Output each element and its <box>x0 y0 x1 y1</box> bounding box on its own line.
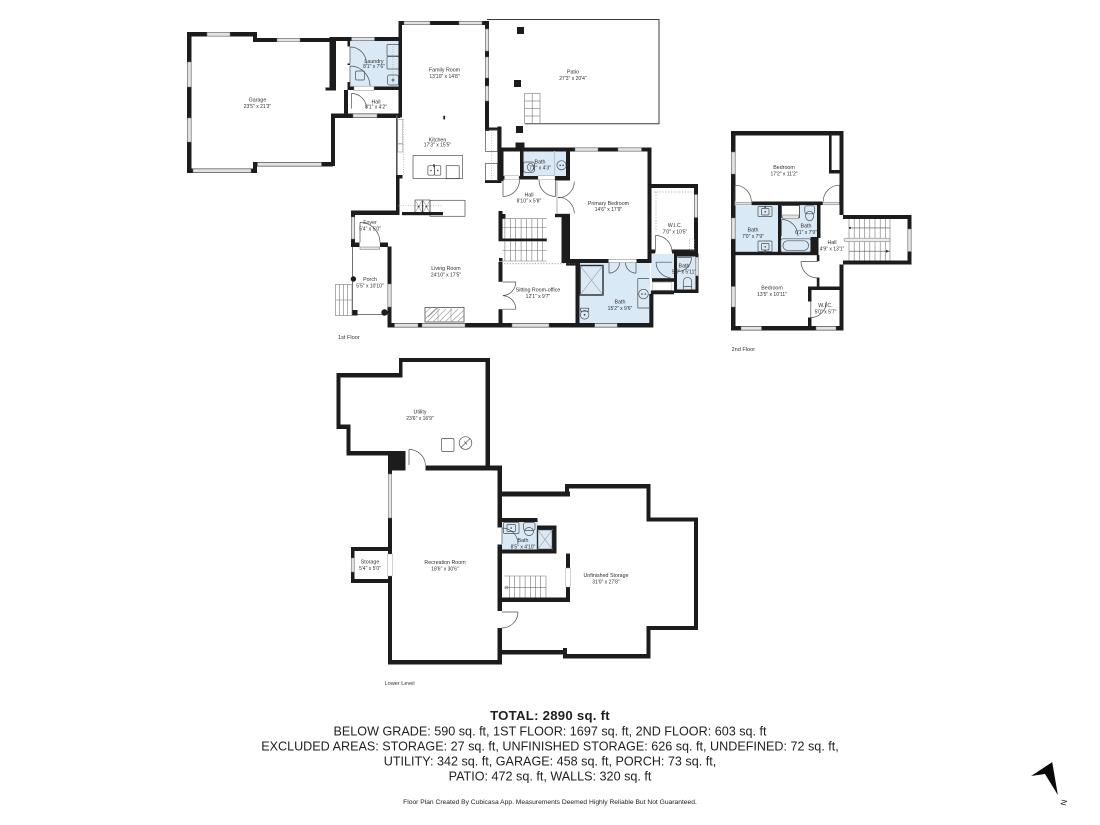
svg-text:23'6" x 16'9": 23'6" x 16'9" <box>406 416 434 422</box>
svg-text:N: N <box>1058 799 1068 807</box>
svg-text:8'1" x 4'2": 8'1" x 4'2" <box>365 105 387 111</box>
svg-text:27'3" x 20'4": 27'3" x 20'4" <box>559 76 587 82</box>
svg-text:Floor Plan Created By Cubicasa: Floor Plan Created By Cubicasa App. Meas… <box>403 799 697 806</box>
svg-text:5'4" x 5'0": 5'4" x 5'0" <box>359 227 381 233</box>
svg-text:1st Floor: 1st Floor <box>338 335 360 341</box>
svg-text:5'0" x 5'7": 5'0" x 5'7" <box>815 310 837 316</box>
svg-text:17'3" x 15'5": 17'3" x 15'5" <box>424 143 452 149</box>
svg-text:12'1" x 9'7": 12'1" x 9'7" <box>526 294 551 300</box>
svg-text:31'0" x 27'8": 31'0" x 27'8" <box>592 580 620 586</box>
svg-text:13'10" x 14'8": 13'10" x 14'8" <box>429 74 459 80</box>
svg-text:Bath: Bath <box>615 300 626 306</box>
svg-text:Unfinished Storage: Unfinished Storage <box>583 573 628 579</box>
svg-text:17'2" x 11'2": 17'2" x 11'2" <box>770 172 797 178</box>
svg-text:5'4" x 5'0": 5'4" x 5'0" <box>359 566 381 572</box>
svg-text:24'10" x 17'5": 24'10" x 17'5" <box>431 273 461 279</box>
svg-text:PATIO: 472 sq. ft, WALLS: 320: PATIO: 472 sq. ft, WALLS: 320 sq. ft <box>449 770 652 784</box>
svg-text:7'0" x 7'9": 7'0" x 7'9" <box>742 234 764 240</box>
svg-text:7'2" x 4'3": 7'2" x 4'3" <box>529 166 551 172</box>
svg-text:Bath: Bath <box>518 538 529 544</box>
svg-text:Bath: Bath <box>748 228 759 234</box>
svg-text:Patio: Patio <box>567 70 579 76</box>
svg-text:Porch: Porch <box>363 277 377 283</box>
svg-text:Hall: Hall <box>827 240 836 246</box>
svg-text:8'5" x 4'10": 8'5" x 4'10" <box>511 545 536 551</box>
svg-text:W.I.C.: W.I.C. <box>818 303 832 309</box>
svg-text:Recreation Room: Recreation Room <box>424 560 466 566</box>
svg-text:Bedroom: Bedroom <box>761 286 783 292</box>
svg-text:5'0" x 5'11": 5'0" x 5'11" <box>672 270 696 276</box>
svg-text:14'6" x 17'9": 14'6" x 17'9" <box>595 207 623 213</box>
svg-text:UTILITY: 342 sq. ft, GARAGE: 4: UTILITY: 342 sq. ft, GARAGE: 458 sq. ft,… <box>384 755 716 769</box>
svg-text:Bath: Bath <box>801 224 812 230</box>
svg-text:Storage: Storage <box>361 560 380 566</box>
svg-text:18'6" x 30'6": 18'6" x 30'6" <box>431 567 459 573</box>
svg-text:13'5" x 10'11": 13'5" x 10'11" <box>757 292 787 298</box>
svg-text:Living Room: Living Room <box>431 266 461 272</box>
svg-text:2nd Floor: 2nd Floor <box>732 347 756 353</box>
svg-text:BELOW GRADE: 590 sq. ft, 1ST F: BELOW GRADE: 590 sq. ft, 1ST FLOOR: 1697… <box>333 725 767 739</box>
svg-text:Utility: Utility <box>414 410 427 416</box>
svg-text:Garage: Garage <box>249 98 267 104</box>
svg-text:TOTAL: 2890 sq. ft: TOTAL: 2890 sq. ft <box>490 708 610 723</box>
svg-text:Foyer: Foyer <box>363 220 377 226</box>
svg-text:8'1" x 7'6": 8'1" x 7'6" <box>363 64 385 70</box>
svg-text:7'0" x 10'5": 7'0" x 10'5" <box>663 230 688 236</box>
svg-text:Lower Level: Lower Level <box>385 681 415 687</box>
svg-text:8'10" x 5'8": 8'10" x 5'8" <box>517 199 542 205</box>
svg-text:Sitting Room-office: Sitting Room-office <box>516 288 561 294</box>
svg-text:EXCLUDED AREAS: STORAGE: 27 sq: EXCLUDED AREAS: STORAGE: 27 sq. ft, UNFI… <box>261 740 839 754</box>
svg-text:23'5" x 21'3": 23'5" x 21'3" <box>244 104 272 110</box>
svg-text:6'1" x 7'9": 6'1" x 7'9" <box>795 230 817 236</box>
svg-text:Bedroom: Bedroom <box>773 165 795 171</box>
svg-text:15'2" x 9'6": 15'2" x 9'6" <box>608 306 633 312</box>
svg-text:W.I.C.: W.I.C. <box>668 223 682 229</box>
svg-text:Family Room: Family Room <box>429 68 461 74</box>
svg-text:5'5" x 10'10": 5'5" x 10'10" <box>356 284 384 290</box>
svg-text:4'9" x 13'1": 4'9" x 13'1" <box>820 247 845 253</box>
